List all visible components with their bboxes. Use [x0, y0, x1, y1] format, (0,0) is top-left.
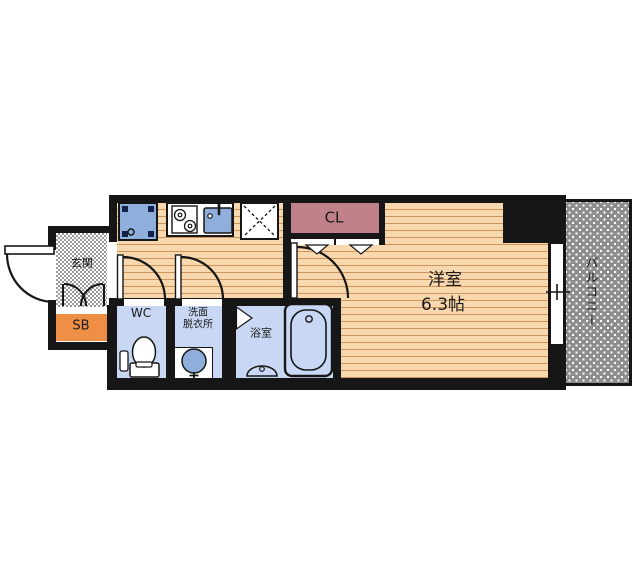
closet-door-divider — [334, 239, 336, 245]
wall-hall-room — [283, 195, 291, 306]
main-room-label: 洋室 — [428, 271, 462, 291]
shoe-box-label: SB — [72, 320, 89, 335]
washroom-label-line2: 脱衣所 — [183, 319, 213, 331]
wc-doorway — [124, 299, 164, 306]
sliding-window — [550, 243, 564, 345]
wall-left — [107, 305, 117, 390]
balcony-label: バルコニー — [582, 256, 601, 329]
wall-corner-block — [503, 195, 566, 243]
entrance-door-icon — [5, 246, 54, 302]
wall — [48, 226, 109, 233]
bathroom-area — [236, 306, 333, 378]
wall — [333, 306, 341, 378]
wall — [48, 342, 109, 350]
wall-left — [109, 195, 117, 242]
vanity-counter — [175, 347, 213, 378]
washroom-doorway — [182, 299, 222, 306]
main-room-size-label: 6.3帖 — [421, 296, 465, 316]
closet-border — [379, 203, 385, 245]
genkan-step — [107, 242, 117, 305]
wall-bottom — [109, 378, 561, 390]
washroom-label: 洗面 脱衣所 — [183, 308, 213, 331]
wall — [222, 306, 236, 378]
bathroom-label: 浴室 — [250, 328, 272, 341]
closet-label: CL — [325, 209, 344, 226]
washroom-label-line1: 洗面 — [183, 308, 213, 320]
genkan-label: 玄関 — [71, 258, 93, 271]
floor-plan: 玄関 SB WC 洗面 脱衣所 浴室 CL 洋室 6.3帖 バルコニー — [0, 0, 640, 580]
wall — [166, 306, 175, 378]
wc-label: WC — [131, 307, 151, 321]
wall-top — [109, 195, 561, 203]
wall — [48, 226, 56, 250]
genkan-sb-gap — [56, 307, 107, 314]
